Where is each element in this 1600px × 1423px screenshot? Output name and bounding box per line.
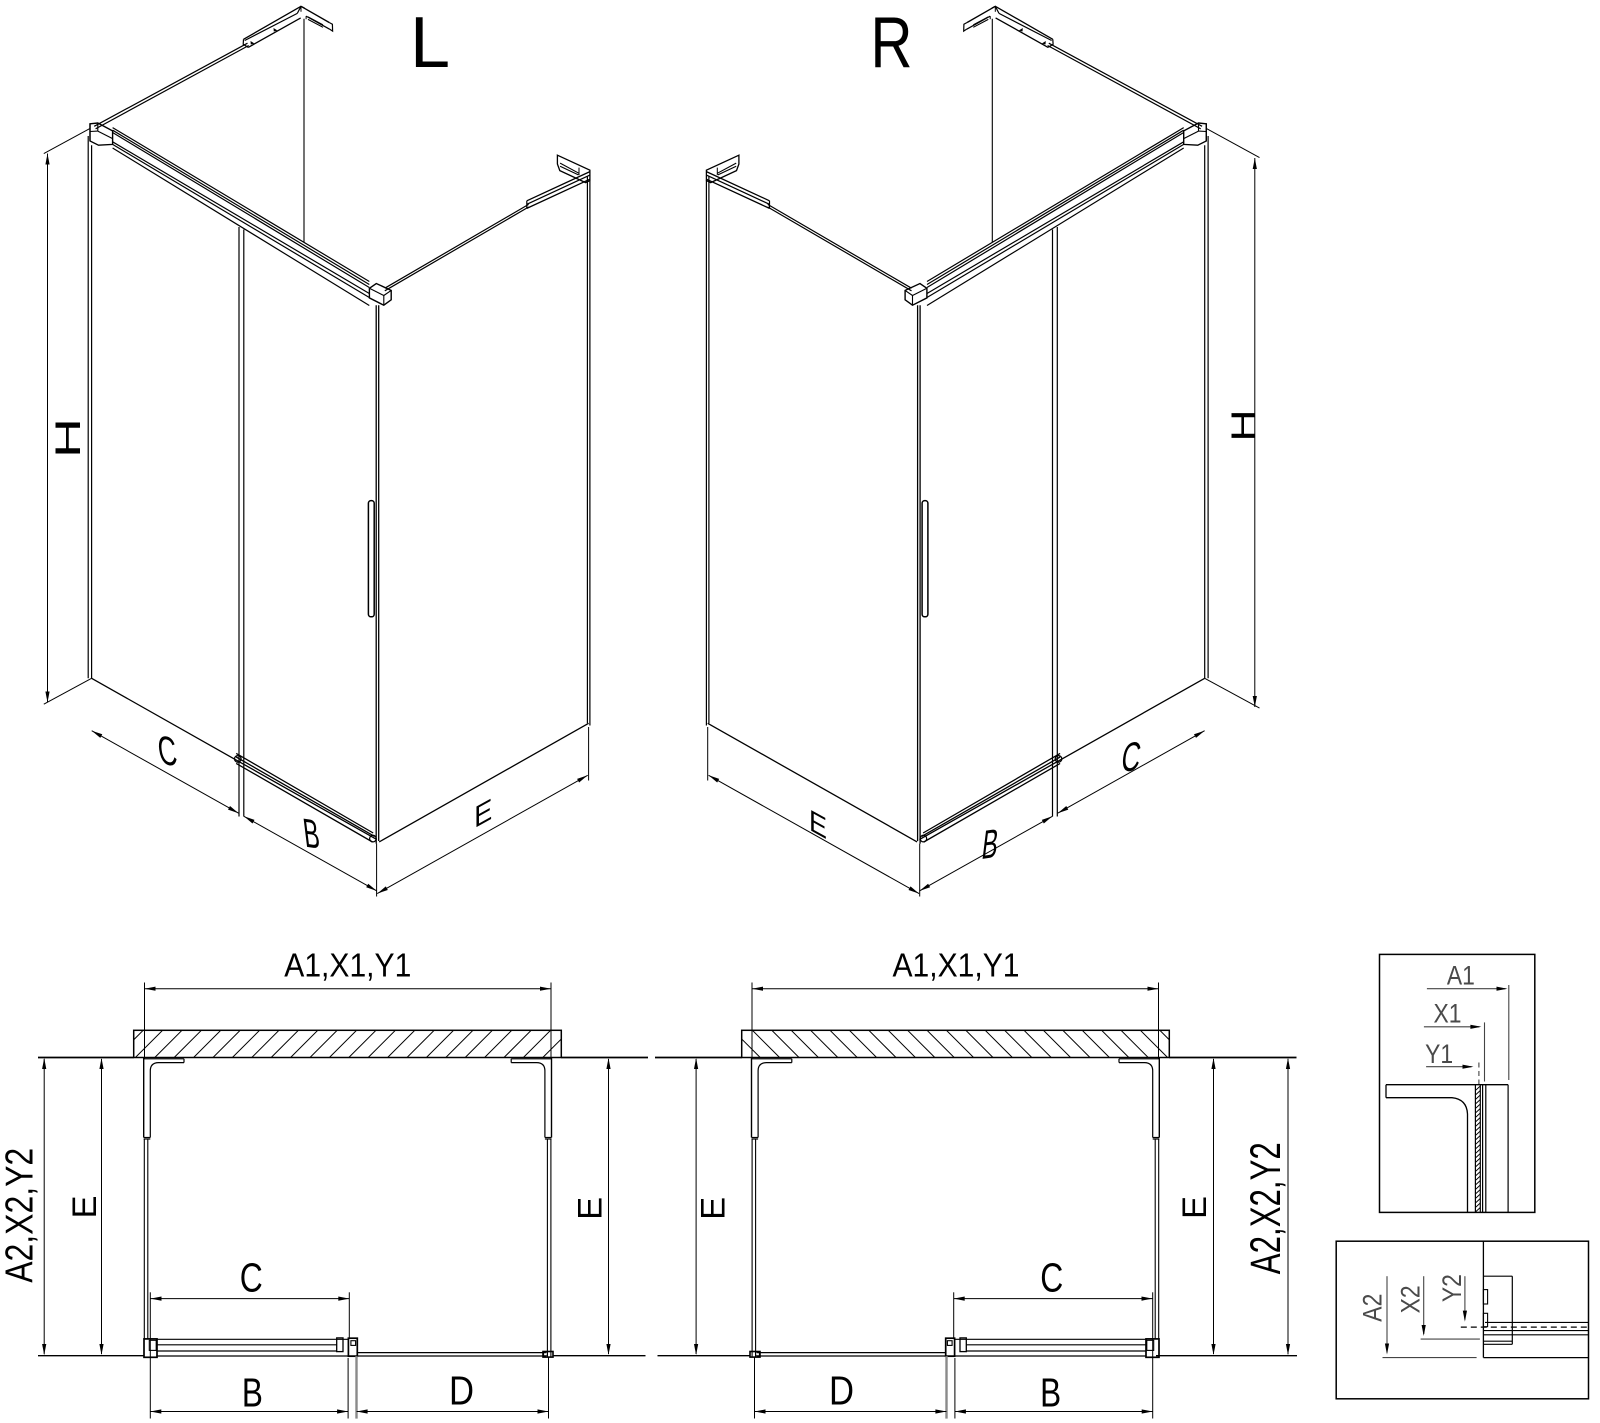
svg-text:A1,X1,Y1: A1,X1,Y1 bbox=[284, 947, 411, 984]
svg-text:A1,X1,Y1: A1,X1,Y1 bbox=[893, 947, 1020, 984]
svg-text:A2,X2,Y2: A2,X2,Y2 bbox=[0, 1148, 42, 1283]
svg-text:E: E bbox=[66, 1195, 104, 1218]
svg-text:E: E bbox=[572, 1197, 610, 1220]
svg-text:C: C bbox=[1040, 1255, 1063, 1301]
svg-text:R: R bbox=[871, 3, 913, 83]
svg-text:D: D bbox=[449, 1368, 474, 1414]
svg-text:A2: A2 bbox=[1358, 1294, 1388, 1322]
svg-text:X2: X2 bbox=[1396, 1285, 1426, 1313]
svg-text:B: B bbox=[242, 1369, 263, 1415]
svg-text:A1: A1 bbox=[1447, 961, 1475, 991]
svg-text:B: B bbox=[1040, 1369, 1061, 1415]
svg-text:X1: X1 bbox=[1434, 998, 1462, 1028]
svg-text:H: H bbox=[1225, 410, 1262, 442]
svg-text:C: C bbox=[240, 1255, 263, 1301]
svg-text:E: E bbox=[1176, 1196, 1214, 1219]
svg-text:D: D bbox=[829, 1368, 854, 1414]
svg-text:L: L bbox=[410, 3, 450, 83]
svg-text:A2,X2,Y2: A2,X2,Y2 bbox=[1242, 1142, 1290, 1274]
svg-text:Y2: Y2 bbox=[1437, 1274, 1467, 1302]
svg-text:Y1: Y1 bbox=[1425, 1039, 1453, 1069]
svg-text:E: E bbox=[694, 1197, 732, 1220]
svg-text:H: H bbox=[49, 418, 88, 458]
